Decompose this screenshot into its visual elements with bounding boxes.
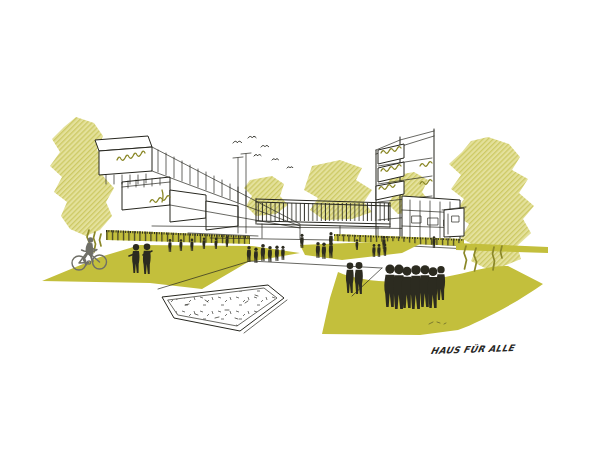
illustration [0, 0, 600, 450]
pedestrian-group-right [384, 264, 445, 309]
cyclist-head [88, 237, 93, 242]
birds [233, 136, 293, 168]
sketch-canvas: HAUS FÜR ALLE [0, 0, 600, 450]
left-tree [50, 117, 114, 236]
lawn-wedges [42, 241, 548, 335]
